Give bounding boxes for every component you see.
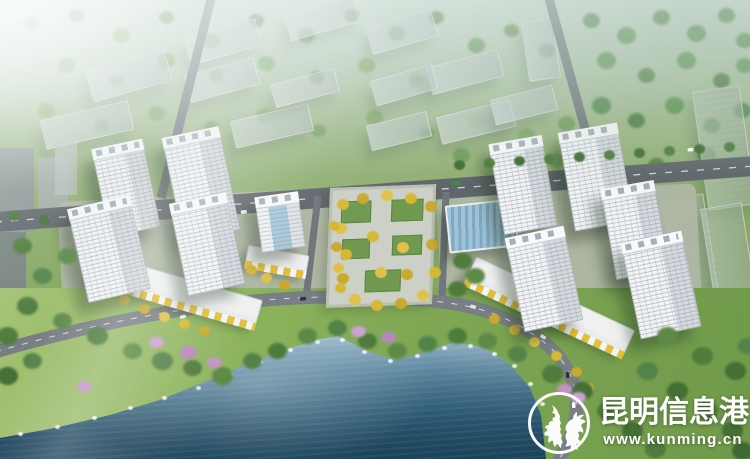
lawn-patch bbox=[392, 235, 423, 256]
blossom-trees bbox=[0, 0, 13, 9]
ghost-building bbox=[521, 18, 561, 82]
lawn-patch bbox=[341, 200, 372, 223]
aerial-rendering: 昆明信息港 www.kunming.cn bbox=[0, 0, 750, 459]
ghost-building bbox=[230, 103, 314, 148]
kunming-portal-logo-icon bbox=[527, 391, 591, 455]
plaza-ginkgo-trees bbox=[0, 0, 10, 9]
roadside-trees bbox=[0, 0, 9, 8]
ghost-building bbox=[366, 111, 432, 151]
ghost-building bbox=[270, 68, 340, 108]
ghost-building bbox=[490, 85, 558, 126]
ghost-tower bbox=[692, 85, 750, 211]
midrise-building bbox=[254, 191, 305, 253]
watermark-site-url: www.kunming.cn bbox=[599, 431, 747, 448]
lawn-patch bbox=[364, 269, 401, 292]
ghost-building bbox=[365, 9, 438, 55]
shoreline-foam bbox=[0, 0, 5, 4]
ghost-building bbox=[284, 0, 360, 41]
central-plaza bbox=[326, 184, 436, 308]
distant-building bbox=[55, 143, 77, 195]
ghost-building bbox=[370, 64, 439, 107]
shoreline-trees bbox=[0, 0, 15, 12]
lawn-patch bbox=[342, 238, 371, 259]
street-trees bbox=[0, 0, 9, 8]
watermark-site-name: 昆明信息港 bbox=[599, 396, 750, 429]
distant-tree-clusters bbox=[0, 0, 13, 11]
distant-building bbox=[0, 148, 34, 232]
ghost-building bbox=[85, 49, 173, 102]
lawn-patch bbox=[391, 199, 424, 222]
